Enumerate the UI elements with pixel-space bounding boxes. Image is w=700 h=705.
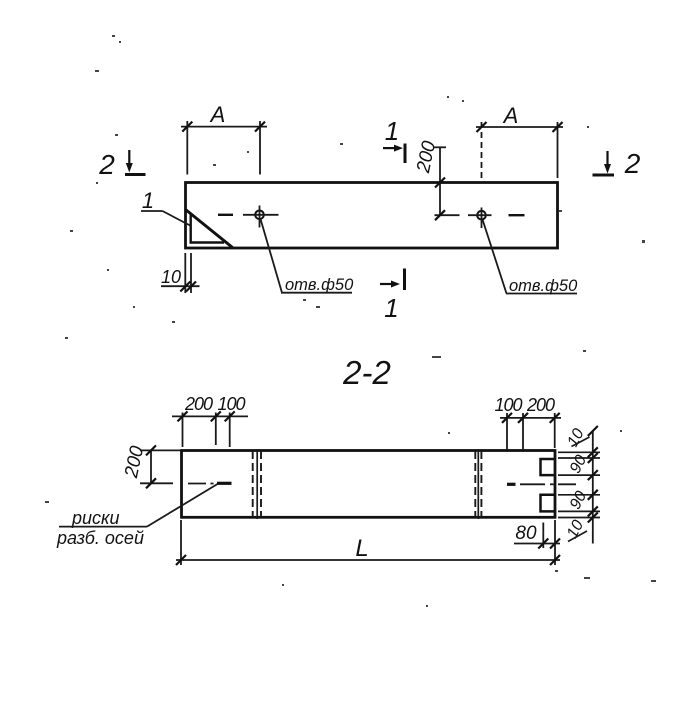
svg-text:200: 200 — [184, 394, 213, 414]
svg-text:отв.ф50: отв.ф50 — [285, 276, 354, 294]
svg-text:1: 1 — [384, 293, 398, 323]
svg-text:1: 1 — [142, 188, 154, 213]
svg-text:10: 10 — [161, 267, 181, 287]
svg-text:100: 100 — [494, 395, 522, 415]
svg-text:80: 80 — [515, 523, 537, 544]
svg-text:A: A — [502, 103, 519, 128]
svg-text:A: A — [209, 102, 226, 127]
svg-text:L: L — [355, 535, 368, 562]
svg-text:риски: риски — [71, 508, 120, 528]
svg-text:отв.ф50: отв.ф50 — [509, 277, 578, 295]
svg-text:разб. осей: разб. осей — [56, 528, 144, 548]
svg-text:1: 1 — [385, 116, 399, 146]
svg-text:2: 2 — [98, 149, 115, 180]
svg-text:200: 200 — [526, 395, 555, 415]
svg-text:2-2: 2-2 — [342, 354, 391, 391]
svg-text:100: 100 — [217, 394, 245, 414]
svg-text:2: 2 — [624, 148, 641, 179]
